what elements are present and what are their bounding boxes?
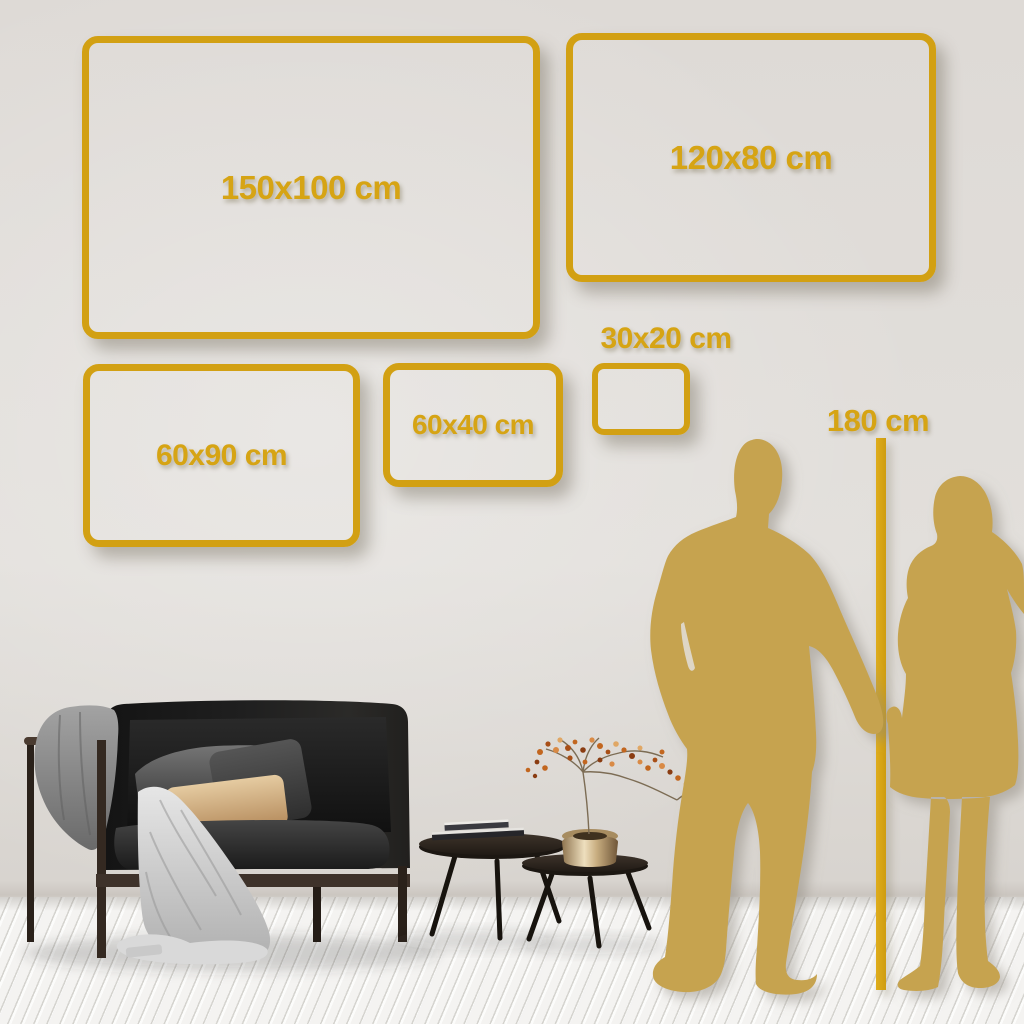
woman-silhouette bbox=[886, 476, 1024, 991]
man-silhouette bbox=[650, 439, 883, 995]
couple-silhouettes bbox=[0, 0, 1024, 1024]
size-guide-scene: 150x100 cm 120x80 cm 60x90 cm 60x40 cm 3… bbox=[0, 0, 1024, 1024]
